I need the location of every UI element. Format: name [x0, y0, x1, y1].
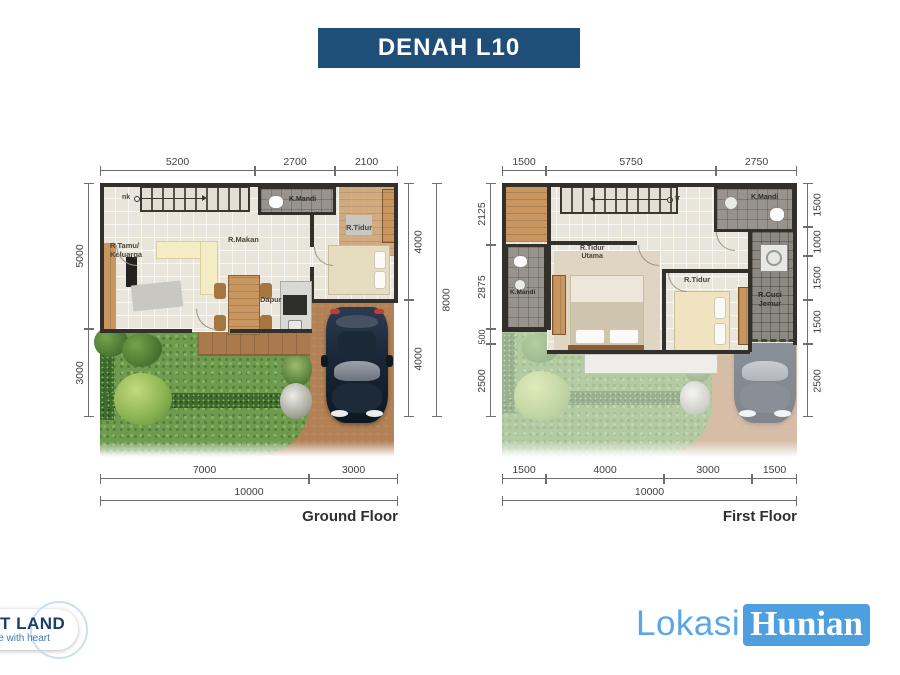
car-headlight — [331, 410, 348, 417]
dim-label: 1500 — [752, 464, 797, 476]
publisher-logo: LokasiHunian — [636, 603, 870, 646]
dim-label: 4000 — [412, 230, 424, 253]
bush — [114, 373, 172, 425]
wall — [100, 183, 398, 187]
ground-floor-label: Ground Floor — [250, 508, 398, 525]
dim-segment: 5200 — [100, 170, 255, 171]
bathroom-top-right: K.Mandi — [714, 186, 795, 232]
bush — [680, 381, 710, 415]
publisher-logo-part1: Lokasi — [636, 604, 740, 643]
staircase — [140, 186, 250, 212]
room-label-tidur-utama-line2: Utama — [581, 253, 602, 260]
dim-segment: 2750 — [716, 170, 797, 171]
first-floor-label: First Floor — [660, 508, 797, 525]
room-label-dapur: Dapur — [260, 295, 282, 304]
shrub — [282, 351, 312, 387]
wall — [394, 183, 398, 303]
dim-label: 8000 — [440, 288, 452, 311]
developer-logo-tagline: le with heart — [0, 633, 50, 644]
dim-segment: 500 — [490, 329, 491, 344]
dim-segment: 1500 — [752, 478, 797, 479]
dim-segment: 10000 — [502, 500, 797, 501]
stair-arrow-start — [134, 196, 140, 202]
stair-direction-label: tr — [675, 195, 680, 203]
dim-segment: 3000 — [664, 478, 752, 479]
stair-arrow-line — [140, 198, 202, 199]
dim-label: 2875 — [476, 275, 488, 298]
wall — [312, 299, 398, 303]
publisher-logo-part2: Hunian — [743, 604, 870, 646]
bush — [280, 383, 312, 419]
dim-segment: 2875 — [490, 245, 491, 329]
vent-wall — [752, 339, 795, 342]
stair-arrow-start — [667, 197, 673, 203]
room-label-cuci-line1: R.Cuci — [758, 290, 782, 299]
pillow — [374, 251, 386, 269]
wall — [662, 269, 666, 352]
void-wood-deck — [505, 186, 547, 242]
dim-label: 1500 — [811, 310, 823, 333]
laundry-room: R.Cuci Jemur — [752, 232, 795, 342]
pillow — [714, 323, 726, 345]
rug — [131, 280, 183, 311]
slide: DENAH L10 5200 2700 2100 5000 3000 4000 … — [0, 0, 900, 675]
wall — [502, 183, 506, 332]
dim-label: 10000 — [100, 486, 398, 498]
dim-segment: 4000 — [408, 183, 409, 300]
dim-label: 5750 — [546, 156, 716, 168]
developer-logo: T LAND le with heart — [0, 609, 78, 650]
car — [326, 307, 388, 423]
yard-fade — [100, 441, 394, 457]
wall — [230, 329, 312, 333]
yard-fade — [502, 441, 797, 457]
staircase — [560, 186, 678, 214]
dim-segment: 7000 — [100, 478, 309, 479]
dim-segment: 1500 — [807, 300, 808, 344]
dim-segment: 2500 — [490, 344, 491, 417]
room-label-kmandi-left: K.Mandi — [510, 289, 535, 297]
dim-label: 2100 — [335, 156, 398, 168]
car-windshield — [334, 361, 380, 381]
room-label-kmandi: K.Mandi — [289, 196, 316, 204]
car-hood — [332, 383, 382, 413]
toilet-icon — [513, 255, 528, 268]
ground-floor-plan: nk K.Mandi R.Tidur R Tamu/ Keluarga — [100, 183, 398, 417]
wall — [100, 183, 104, 333]
bathroom-left: K.Mandi — [505, 244, 547, 330]
dim-label: 7000 — [100, 464, 309, 476]
car-mirror — [386, 355, 393, 367]
dim-segment: 4000 — [408, 300, 409, 417]
dim-segment: 2100 — [335, 170, 398, 171]
room-label-kmandi-top: K.Mandi — [751, 194, 778, 202]
wall — [100, 329, 192, 333]
car-mirror — [321, 355, 328, 367]
car-windshield — [742, 361, 788, 381]
stair-direction-label: nk — [122, 194, 130, 202]
room-label-cuci-line2: Jemur — [759, 299, 782, 308]
car-rear-glass — [336, 315, 378, 328]
stove — [283, 295, 307, 315]
first-floor-plan: K.Mandi tr K.Mandi R.Cuci Jemur — [502, 183, 797, 417]
chair — [214, 283, 226, 299]
pillow — [714, 297, 726, 319]
stair-arrow-line — [595, 199, 667, 200]
dim-segment: 1000 — [807, 227, 808, 256]
pillow — [609, 329, 639, 344]
dim-label: 10000 — [502, 486, 797, 498]
dim-segment: 2125 — [490, 183, 491, 245]
car-roof — [338, 331, 376, 359]
room-label-tidur: R.Tidur — [346, 223, 372, 232]
dim-label: 2500 — [476, 369, 488, 392]
dim-label: 1000 — [811, 230, 823, 253]
car-headlight — [739, 410, 756, 417]
dim-segment: 5000 — [88, 183, 89, 329]
dim-label: 2125 — [476, 202, 488, 225]
dim-segment: 5750 — [546, 170, 716, 171]
dim-segment: 1500 — [807, 183, 808, 227]
roof-ledge — [584, 354, 718, 374]
dim-label: 3000 — [309, 464, 398, 476]
dim-segment: 2700 — [255, 170, 335, 171]
wardrobe — [552, 275, 566, 335]
toilet-icon — [268, 195, 284, 209]
car-headlight — [366, 410, 383, 417]
dim-label: 1500 — [811, 266, 823, 289]
dim-label: 4000 — [546, 464, 664, 476]
wall — [793, 183, 797, 345]
wall — [748, 232, 752, 352]
sink-icon — [724, 196, 738, 210]
car-hood — [740, 383, 790, 413]
room-label-tidur-utama-line1: R.Tidur — [580, 245, 604, 252]
room-label-makan: R.Makan — [228, 235, 259, 244]
dim-label: 4000 — [412, 347, 424, 370]
dim-label: 2750 — [716, 156, 797, 168]
dim-segment: 3000 — [88, 329, 89, 417]
page-title: DENAH L10 — [318, 28, 580, 68]
wall — [547, 186, 551, 330]
dim-label: 5000 — [74, 244, 86, 267]
wood-deck — [198, 332, 310, 356]
dining-table — [228, 275, 260, 335]
dim-segment: 1500 — [502, 170, 546, 171]
dim-label: 5200 — [100, 156, 255, 168]
car-taillight — [374, 309, 384, 314]
dim-segment: 10000 — [100, 500, 398, 501]
dim-segment: 3000 — [309, 478, 398, 479]
toilet-icon — [769, 207, 785, 222]
pillow — [575, 329, 605, 344]
dim-label: 2700 — [255, 156, 335, 168]
car-taillight — [330, 309, 340, 314]
developer-logo-name: T LAND — [0, 614, 65, 634]
dim-label: 3000 — [664, 464, 752, 476]
pillow — [374, 271, 386, 289]
dim-label: 1500 — [502, 464, 546, 476]
dim-label: 3000 — [74, 361, 86, 384]
car-headlight — [774, 410, 791, 417]
bed-sheet — [571, 276, 643, 302]
master-bed — [570, 275, 644, 349]
dim-label: 2500 — [811, 369, 823, 392]
washing-machine — [760, 244, 788, 272]
bathroom-ground: K.Mandi — [258, 186, 336, 215]
bed — [328, 245, 390, 295]
bush — [514, 371, 570, 421]
bed — [674, 291, 730, 351]
dim-label: 500 — [477, 329, 487, 344]
dim-segment: 4000 — [546, 478, 664, 479]
dim-label: 1500 — [502, 156, 546, 168]
wall — [551, 241, 637, 245]
dim-segment: 1500 — [807, 256, 808, 300]
wall — [502, 328, 547, 332]
wall — [310, 213, 314, 247]
dim-segment: 8000 — [436, 183, 437, 417]
stair-arrow-head — [202, 195, 207, 201]
room-label-tidur: R.Tidur — [684, 275, 710, 284]
dim-segment: 2500 — [807, 344, 808, 417]
dim-segment: 1500 — [502, 478, 546, 479]
dim-label: 1500 — [811, 193, 823, 216]
